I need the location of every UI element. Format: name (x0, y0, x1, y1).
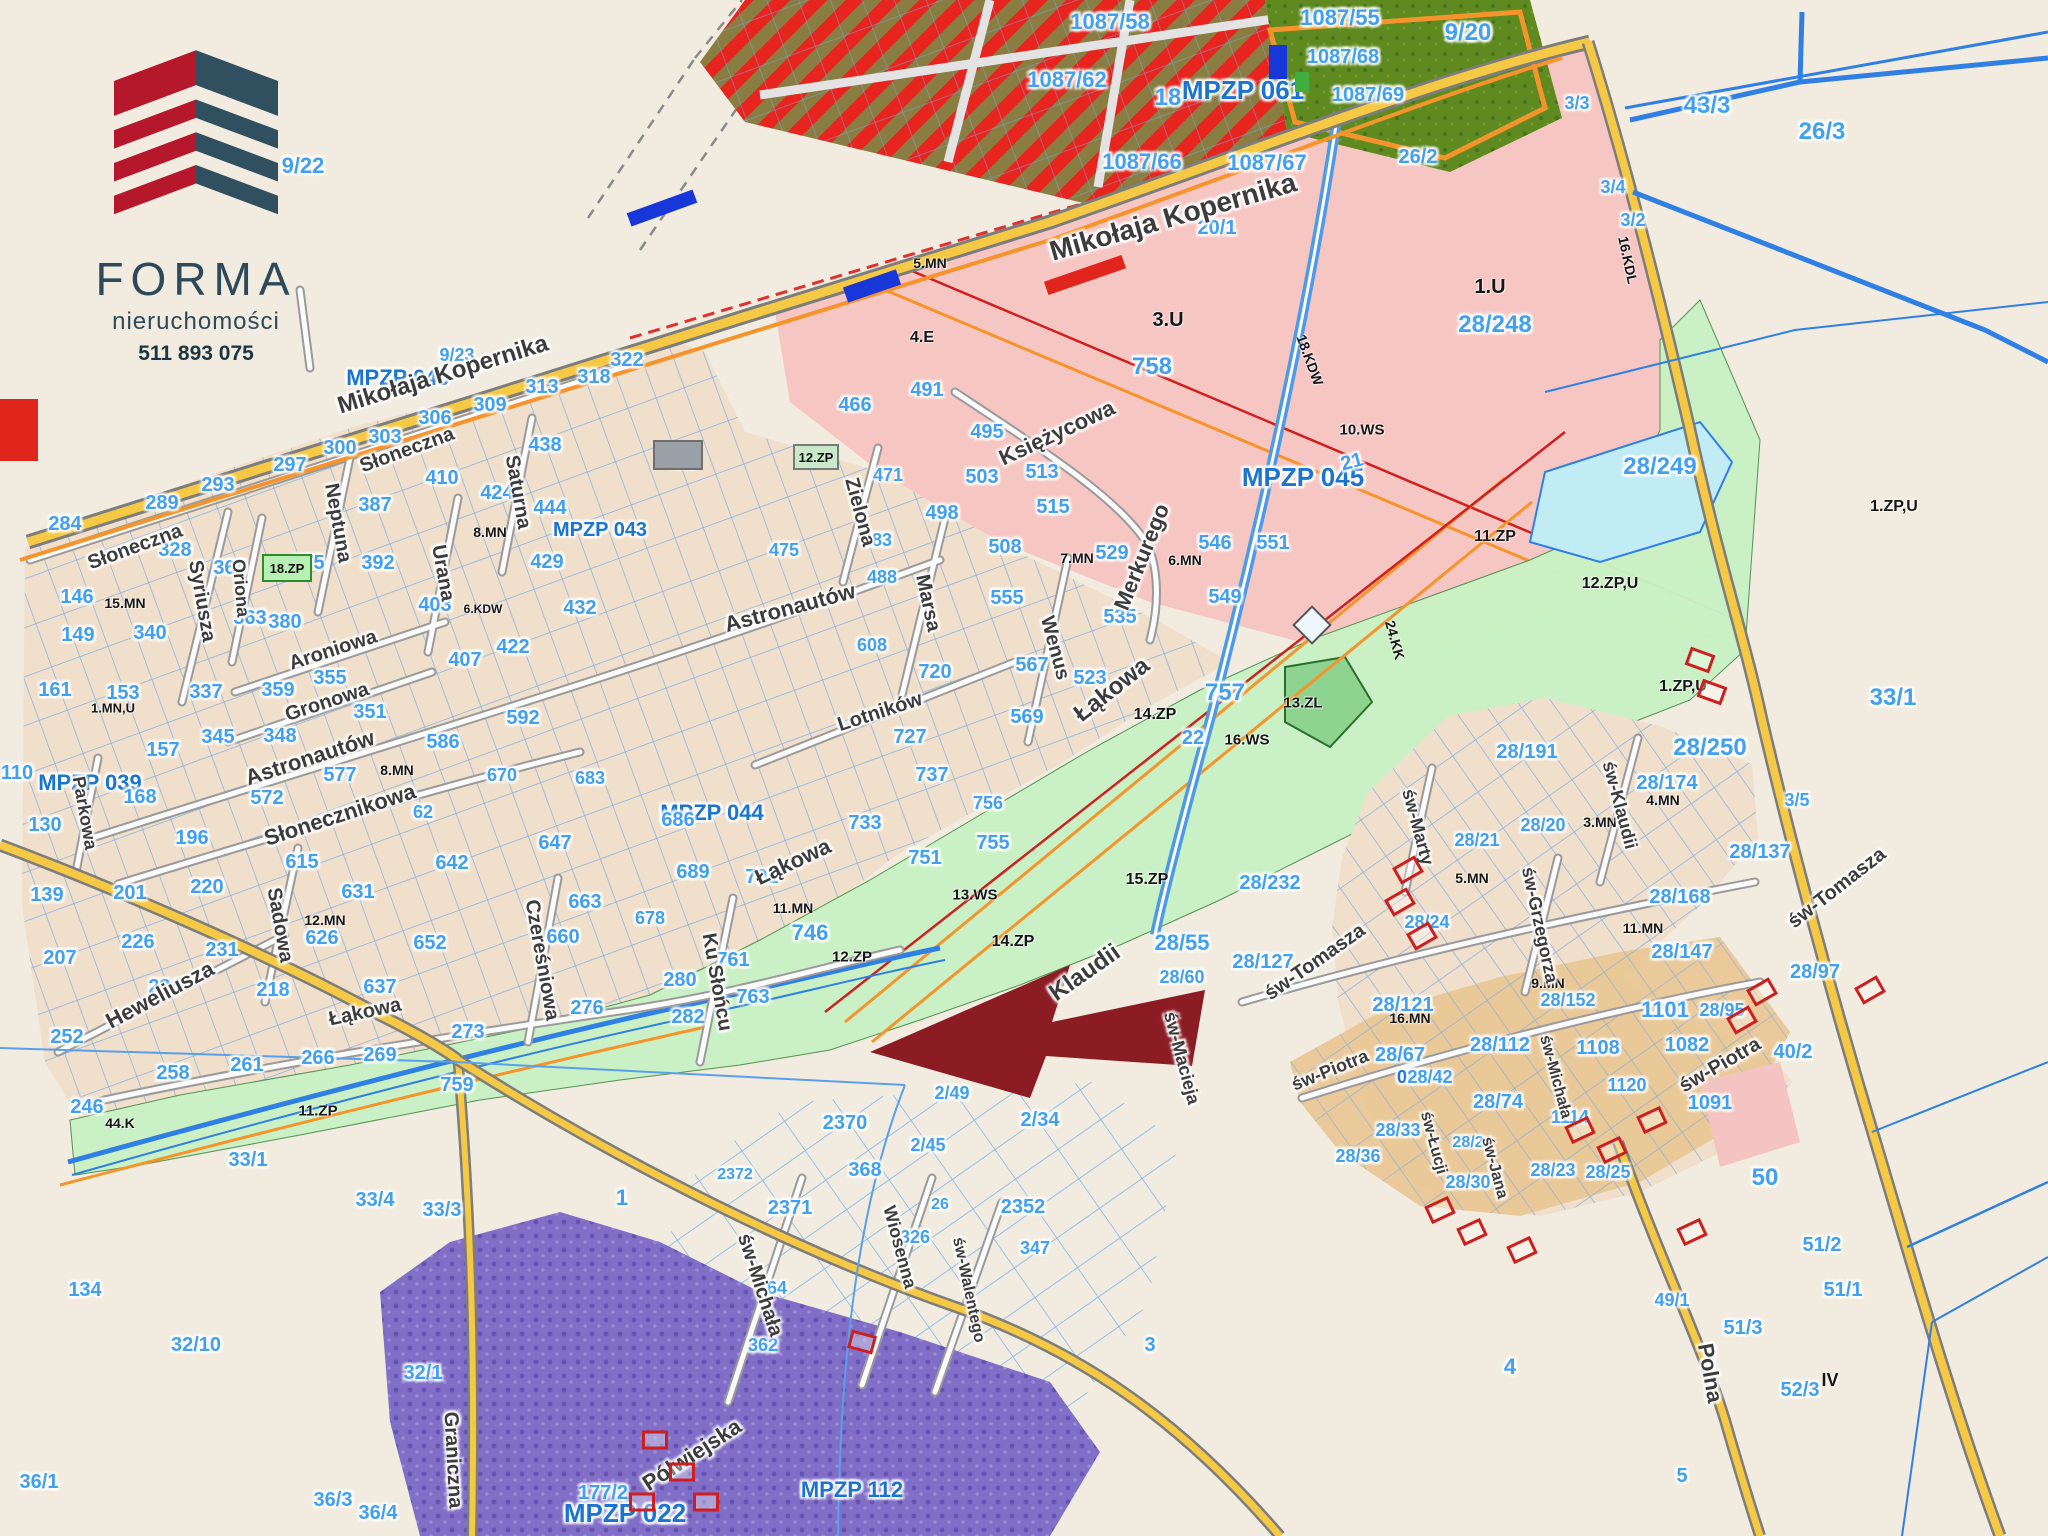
parcel-number-label: 586 (426, 732, 459, 752)
zone-code-label: 3.MN (1583, 815, 1616, 829)
parcel-number-label: 33/1 (229, 1150, 268, 1170)
parcel-number-label: 130 (28, 815, 61, 835)
mpzp-plan-label: MPZP 061 (1182, 77, 1304, 103)
street-name-label: św-Grzegorza (1519, 865, 1561, 984)
street-name-label: Saturna (502, 454, 535, 531)
parcel-number-label: 28/21 (1454, 831, 1499, 849)
parcel-number-label: 508 (988, 537, 1021, 557)
parcel-number-label: 28/97 (1790, 962, 1840, 982)
parcel-number-label: 273 (451, 1022, 484, 1042)
map-color-patch (653, 440, 703, 470)
parcel-number-label: 36/1 (20, 1472, 59, 1492)
parcel-number-label: 513 (1025, 462, 1058, 482)
zone-code-label: IV (1821, 1371, 1838, 1389)
zone-code-label: 11.MN (773, 901, 813, 915)
parcel-number-label: 110 (1, 763, 33, 783)
zone-code-label: 44.K (105, 1116, 135, 1130)
parcel-number-label: 491 (910, 380, 943, 400)
parcel-number-label: 246 (70, 1097, 103, 1117)
parcel-number-label: 52/3 (1781, 1380, 1820, 1400)
parcel-number-label: 134 (68, 1280, 101, 1300)
zone-code-label: 10.WS (1339, 423, 1384, 438)
parcel-number-label: 608 (857, 636, 887, 654)
zone-code-label: 5.MN (913, 256, 946, 270)
parcel-number-label: 3/4 (1600, 178, 1625, 196)
parcel-number-label: 28/30 (1445, 1173, 1490, 1191)
parcel-number-label: 2/45 (910, 1136, 945, 1154)
parcel-number-label: 49/1 (1654, 1291, 1689, 1309)
parcel-number-label: 50 (1752, 1166, 1779, 1190)
parcel-number-label: 21 (1339, 449, 1366, 474)
zone-code-label: 12.ZP,U (1582, 576, 1639, 592)
parcel-number-label: 569 (1010, 707, 1043, 727)
street-name-label: św-Macieja (1161, 1010, 1203, 1106)
street-name-label: Czereśniowa (522, 898, 563, 1022)
parcel-number-label: 161 (38, 680, 71, 700)
parcel-number-label: 28/20 (1520, 816, 1565, 834)
parcel-number-label: 3 (1144, 1335, 1155, 1355)
parcel-number-label: 422 (496, 637, 529, 657)
street-name-label: Słonecznikowa (262, 780, 419, 850)
zone-code-label: 15.MN (104, 596, 145, 610)
parcel-number-label: 26/2 (1399, 147, 1438, 167)
zone-code-label: 8.MN (380, 763, 413, 777)
building-outline (642, 1431, 668, 1450)
parcel-number-label: 727 (893, 727, 926, 747)
building-outline (1456, 1218, 1488, 1246)
zone-code-label: 15.ZP (1126, 872, 1169, 888)
parcel-number-label: 757 (1205, 681, 1245, 705)
parcel-number-label: 51/2 (1803, 1235, 1842, 1255)
parcel-number-label: 22 (1182, 728, 1204, 748)
mpzp-plan-label: MPZP 112 (801, 1479, 903, 1501)
street-name-label: Księżycowa (996, 397, 1118, 470)
parcel-number-label: 33/4 (356, 1190, 395, 1210)
parcel-number-label: 746 (792, 922, 829, 944)
parcel-number-label: 348 (263, 726, 296, 746)
parcel-number-label: 28/250 (1673, 736, 1746, 760)
zone-code-label: 13.WS (952, 888, 997, 903)
parcel-number-label: 28/147 (1651, 942, 1712, 962)
parcel-number-label: 28/55 (1154, 932, 1209, 954)
street-name-label: Heweliusza (102, 957, 217, 1032)
building-outline (847, 1329, 877, 1354)
parcel-number-label: 759 (440, 1075, 473, 1095)
zone-code-label: 1.ZP,U (1870, 499, 1918, 515)
parcel-number-label: 3/5 (1784, 791, 1809, 809)
parcel-number-label: 231 (205, 940, 238, 960)
zone-code-label: 14.ZP (992, 934, 1035, 950)
street-name-label: św-Piotra (1289, 1046, 1371, 1093)
parcel-number-label: 410 (425, 468, 458, 488)
parcel-number-label: 226 (121, 932, 154, 952)
building-outline (1746, 977, 1778, 1006)
street-name-label: Klaudii (1045, 940, 1124, 1006)
parcel-number-label: 555 (990, 588, 1023, 608)
parcel-number-label: 647 (538, 833, 571, 853)
parcel-number-label: 28/191 (1496, 742, 1557, 762)
parcel-number-label: 686 (661, 810, 694, 830)
parcel-number-label: 592 (506, 708, 539, 728)
parcel-number-label: 51/1 (1824, 1280, 1863, 1300)
parcel-number-label: 252 (50, 1027, 83, 1047)
zone-code-label: 4.MN (1646, 793, 1679, 807)
parcel-number-label: 33/1 (1870, 686, 1917, 710)
street-name-label: św-Klaudii (1600, 759, 1641, 851)
parcel-number-label: 577 (323, 765, 356, 785)
zone-code-label: 11.ZP (298, 1104, 337, 1119)
parcel-number-label: 276 (570, 998, 603, 1018)
zone-box-18-zp: 18.ZP (262, 554, 312, 582)
parcel-number-label: 258 (156, 1063, 189, 1083)
parcel-number-label: 340 (133, 623, 166, 643)
building-outline (693, 1493, 719, 1512)
parcel-number-label: 2/49 (934, 1084, 969, 1102)
parcel-number-label: 546 (1198, 533, 1231, 553)
parcel-number-label: 689 (676, 862, 709, 882)
parcel-number-label: 1091 (1688, 1093, 1733, 1113)
zone-code-label: 24.KK (1383, 619, 1407, 661)
parcel-number-label: 28/60 (1159, 968, 1204, 986)
parcel-number-label: 626 (305, 928, 338, 948)
parcel-number-label: 380 (268, 612, 301, 632)
parcel-number-label: 157 (146, 740, 179, 760)
parcel-number-label: 207 (43, 948, 76, 968)
parcel-number-label: 362 (748, 1336, 778, 1354)
zone-code-label: 3.U (1152, 310, 1183, 330)
parcel-number-label: 282 (671, 1007, 704, 1027)
parcel-number-label: 737 (915, 765, 948, 785)
parcel-number-label: 1101 (1641, 999, 1689, 1021)
street-name-label: Graniczna (440, 1411, 465, 1509)
street-name-label: Mikołaja Kopernika (1046, 168, 1299, 265)
parcel-number-label: 345 (201, 727, 234, 747)
parcel-number-label: 28/23 (1530, 1161, 1575, 1179)
parcel-number-label: 351 (353, 702, 386, 722)
street-name-label: św-Łucji (1417, 1110, 1449, 1176)
parcel-number-label: 168 (123, 787, 156, 807)
building-outline (1424, 1196, 1456, 1224)
parcel-number-label: 432 (563, 598, 596, 618)
parcel-number-label: 368 (848, 1160, 881, 1180)
parcel-number-label: 763 (736, 987, 769, 1007)
street-name-label: św-Marty (1399, 787, 1437, 867)
logo-building-icon (91, 40, 301, 245)
parcel-number-label: 146 (60, 587, 93, 607)
parcel-number-label: 28/67 (1375, 1045, 1425, 1065)
zone-code-label: 14.ZP (1134, 707, 1177, 723)
map-viewport: 9/221087/581087/551087/6218MPZP 0611087/… (0, 0, 2048, 1536)
brand-name: FORMA (62, 252, 330, 306)
parcel-number-label: 758 (1132, 355, 1172, 379)
zone-code-label: 1.MN,U (91, 702, 135, 715)
street-name-label: Sadowa (264, 886, 297, 964)
parcel-number-label: 670 (487, 766, 517, 784)
parcel-number-label: 33/3 (423, 1200, 462, 1220)
building-outline (1596, 1136, 1628, 1164)
parcel-number-label: 2370 (823, 1113, 868, 1133)
parcel-number-label: 1087/69 (1332, 85, 1404, 105)
building-outline (1636, 1106, 1668, 1134)
parcel-number-label: 429 (530, 552, 563, 572)
parcel-number-label: 28/33 (1375, 1121, 1420, 1139)
parcel-number-label: 1108 (1576, 1038, 1619, 1058)
parcel-number-label: 515 (1036, 497, 1069, 517)
parcel-number-label: 269 (363, 1045, 396, 1065)
zone-code-label: 12.ZP (832, 950, 872, 965)
parcel-number-label: 51/3 (1724, 1318, 1763, 1338)
street-name-label: Marsa (912, 573, 944, 634)
building-outline (1685, 647, 1716, 674)
parcel-number-label: 751 (908, 848, 941, 868)
parcel-number-label: 347 (1020, 1239, 1050, 1257)
street-name-label: Łąkowa (752, 835, 834, 889)
parcel-number-label: 9/20 (1445, 21, 1492, 45)
zone-code-label: 1.U (1474, 277, 1505, 297)
parcel-number-label: 28/137 (1729, 842, 1790, 862)
parcel-number-label: 733 (848, 813, 881, 833)
parcel-number-label: 149 (61, 625, 94, 645)
building-outline (1697, 679, 1728, 706)
parcel-number-label: 631 (341, 882, 374, 902)
parcel-number-label: 488 (867, 568, 897, 586)
parcel-number-label: 28/232 (1239, 873, 1300, 893)
street-name-label: św-Tomasza (1785, 844, 1890, 932)
street-name-label: Polna (1694, 1342, 1726, 1405)
parcel-number-label: 28/249 (1623, 455, 1696, 479)
parcel-number-label: 498 (925, 503, 958, 523)
parcel-number-label: 220 (190, 877, 223, 897)
parcel-number-label: 322 (610, 350, 643, 370)
parcel-number-label: 756 (973, 794, 1003, 812)
zone-code-label: 13.ZL (1283, 696, 1322, 711)
parcel-number-label: 337 (189, 682, 222, 702)
building-outline (1506, 1236, 1538, 1264)
parcel-number-label: 5 (1676, 1466, 1687, 1486)
zone-code-label: 18.KDW (1294, 333, 1325, 388)
agency-logo: FORMA nieruchomości 511 893 075 (62, 40, 330, 366)
parcel-number-label: 359 (261, 680, 294, 700)
parcel-number-label: 28/168 (1649, 887, 1710, 907)
parcel-number-label: 1 (616, 1187, 628, 1209)
parcel-number-label: 529 (1095, 543, 1128, 563)
parcel-number-label: 495 (970, 422, 1003, 442)
parcel-number-label: 28/25 (1585, 1163, 1630, 1181)
parcel-number-label: 1082 (1665, 1035, 1710, 1055)
parcel-number-label: 444 (533, 498, 566, 518)
parcel-number-label: 572 (250, 788, 283, 808)
parcel-number-label: 503 (965, 467, 998, 487)
zone-code-label: 6.MN (1168, 553, 1201, 567)
parcel-number-label: 261 (230, 1055, 263, 1075)
parcel-number-label: 551 (1256, 533, 1289, 553)
parcel-number-label: 475 (769, 541, 799, 559)
parcel-number-label: 293 (201, 475, 234, 495)
parcel-number-label: 2352 (1001, 1197, 1046, 1217)
street-name-label: Neptuna (321, 482, 355, 564)
parcel-number-label: 720 (918, 662, 951, 682)
parcel-number-label: 284 (48, 514, 81, 534)
brand-subtitle: nieruchomości (62, 308, 330, 336)
map-color-patch (843, 269, 901, 302)
parcel-number-label: 36/4 (359, 1503, 398, 1523)
zone-code-label: 7.MN (1060, 551, 1093, 565)
zone-code-label: 16.WS (1224, 733, 1269, 748)
parcel-number-label: 32/1 (404, 1363, 443, 1383)
parcel-number-label: 1120 (1607, 1076, 1646, 1094)
parcel-number-label: 683 (575, 769, 605, 787)
zone-code-label: 12.MN (304, 913, 345, 927)
zone-box-12-zp: 12.ZP (793, 444, 839, 470)
zone-code-label: 11.ZP (1474, 529, 1516, 545)
parcel-number-label: 660 (546, 927, 579, 947)
parcel-number-label: 1087/58 (1070, 11, 1150, 33)
parcel-number-label: 43/3 (1684, 94, 1731, 118)
street-name-label: Łąkowa (327, 995, 403, 1030)
parcel-number-label: 318 (577, 367, 610, 387)
parcel-number-label: 266 (301, 1048, 334, 1068)
parcel-number-label: 387 (358, 495, 391, 515)
parcel-number-label: 218 (256, 980, 289, 1000)
parcel-number-label: 28/174 (1636, 773, 1697, 793)
street-name-label: Półwiejska (639, 1415, 745, 1495)
parcel-number-label: 40/2 (1774, 1042, 1813, 1062)
parcel-number-label: 32/10 (171, 1335, 221, 1355)
parcel-number-label: 309 (473, 395, 506, 415)
parcel-number-label: 300 (323, 438, 356, 458)
parcel-number-label: 1087/67 (1227, 152, 1307, 174)
parcel-number-label: 2/34 (1021, 1110, 1060, 1130)
parcel-number-label: 642 (435, 853, 468, 873)
parcel-number-label: 196 (175, 828, 208, 848)
zone-code-label: 16.MN (1389, 1011, 1430, 1025)
parcel-number-label: 549 (1208, 587, 1241, 607)
parcel-number-label: 652 (413, 933, 446, 953)
building-outline (1854, 975, 1886, 1004)
street-name-label: Zielona (841, 476, 878, 549)
parcel-number-label: 407 (448, 650, 481, 670)
street-name-label: św-Michała (1536, 1034, 1574, 1121)
street-name-label: św-Walentego (949, 1236, 987, 1344)
zone-code-label: 8.MN (473, 525, 506, 539)
zone-code-label: 11.MN (1623, 921, 1663, 935)
parcel-number-label: 663 (568, 892, 601, 912)
parcel-number-label: 2371 (768, 1198, 813, 1218)
parcel-number-label: 313 (525, 377, 558, 397)
parcel-number-label: 28/74 (1473, 1092, 1523, 1112)
parcel-number-label: 28/42 (1407, 1068, 1452, 1086)
parcel-number-label: 1087/62 (1027, 69, 1107, 91)
parcel-number-label: 1087/66 (1102, 151, 1182, 173)
parcel-number-label: 18 (1155, 86, 1182, 110)
parcel-number-label: 438 (528, 435, 561, 455)
parcel-number-label: 26 (931, 1197, 949, 1213)
parcel-number-label: 26/3 (1799, 120, 1846, 144)
parcel-number-label: 3/3 (1564, 94, 1589, 112)
building-outline (1676, 1218, 1708, 1246)
map-color-patch (0, 399, 38, 461)
parcel-number-label: 567 (1015, 655, 1048, 675)
parcel-number-label: 62 (413, 803, 433, 821)
map-color-patch (627, 189, 698, 226)
zone-code-label: 6.KDW (464, 603, 503, 615)
parcel-number-label: 471 (873, 466, 903, 484)
parcel-number-label: 3/2 (1620, 211, 1645, 229)
parcel-number-label: 289 (145, 493, 178, 513)
zone-code-label: 16.KDL (1616, 235, 1640, 285)
zone-code-label: 4.E (910, 330, 934, 346)
parcel-number-label: 4 (1504, 1356, 1516, 1378)
brand-phone: 511 893 075 (62, 342, 330, 366)
parcel-number-label: 678 (635, 909, 665, 927)
building-outline (669, 1463, 695, 1482)
building-outline (629, 1493, 655, 1512)
map-color-patch (1295, 72, 1309, 92)
parcel-number-label: 201 (113, 883, 146, 903)
parcel-number-label: 36/3 (314, 1490, 353, 1510)
parcel-number-label: 1087/68 (1307, 47, 1379, 67)
parcel-number-label: 28/152 (1540, 991, 1595, 1009)
parcel-number-label: 1087/55 (1300, 7, 1380, 29)
parcel-number-label: 177/2 (578, 1483, 628, 1503)
zone-code-label: 5.MN (1455, 871, 1488, 885)
parcel-number-label: 615 (285, 852, 318, 872)
street-name-label: Oriona (230, 558, 253, 617)
parcel-number-label: 755 (976, 833, 1009, 853)
street-name-label: Astronautów (722, 580, 858, 636)
parcel-number-label: 297 (273, 455, 306, 475)
parcel-number-label: 466 (838, 395, 871, 415)
map-color-patch (1269, 45, 1287, 79)
parcel-number-label: 139 (30, 885, 63, 905)
parcel-number-label: 28/112 (1470, 1035, 1530, 1055)
mpzp-plan-label: MPZP 043 (553, 520, 647, 540)
parcel-number-label: 28/248 (1458, 313, 1531, 337)
parcel-number-label: 28/36 (1335, 1147, 1380, 1165)
parcel-number-label: 280 (663, 970, 696, 990)
parcel-number-label: 392 (361, 553, 394, 573)
map-color-patch (1292, 605, 1332, 645)
parcel-number-label: 2372 (717, 1167, 753, 1183)
street-name-label: Wiosenna (880, 1204, 919, 1291)
